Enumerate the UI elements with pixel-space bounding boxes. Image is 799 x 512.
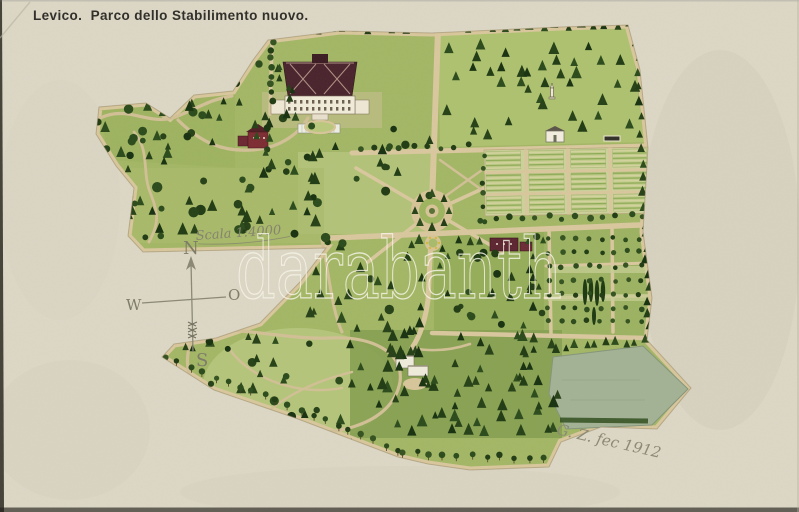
postcard-scan: N O W S Scala 1:4000 G. Z. fec 1912 dara… <box>0 0 799 512</box>
postcard-surface: N O W S Scala 1:4000 G. Z. fec 1912 dara… <box>0 0 799 512</box>
paper-grain <box>0 0 799 512</box>
scan-edge-top <box>0 0 799 2</box>
scan-edge-bottom <box>0 508 799 512</box>
